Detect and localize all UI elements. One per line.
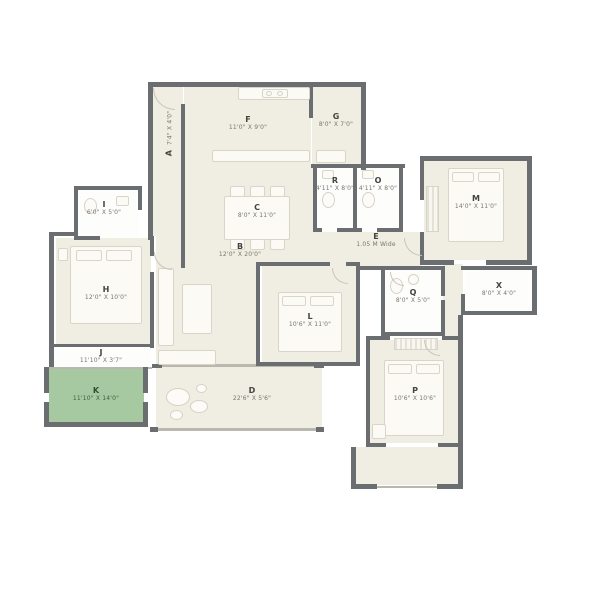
wall (381, 266, 445, 270)
wall (44, 422, 148, 427)
wall (311, 164, 405, 168)
sink-icon (408, 274, 419, 285)
pillow-icon (416, 364, 440, 374)
wall (143, 402, 148, 427)
pillow-icon (106, 250, 132, 261)
balcony-rail (377, 486, 437, 488)
burner-icon (266, 91, 272, 96)
coffee-table-icon (182, 284, 212, 334)
wall (353, 164, 357, 232)
wall (351, 484, 377, 489)
wall (181, 104, 185, 268)
wall (256, 262, 330, 266)
wall (437, 484, 463, 489)
balcony-floor (356, 447, 458, 485)
wall (532, 266, 537, 315)
chair-icon (270, 186, 285, 197)
wall (49, 232, 54, 346)
wall (313, 164, 317, 232)
sink-icon (362, 170, 374, 179)
wall (461, 311, 537, 315)
wall (44, 367, 49, 393)
sofa-icon (158, 268, 174, 346)
wall (74, 236, 100, 240)
sink-icon (116, 196, 129, 206)
wall (486, 260, 532, 265)
wall (458, 447, 463, 488)
wall (256, 262, 260, 366)
wall (441, 300, 445, 336)
wall (361, 82, 366, 170)
wall (381, 266, 385, 336)
stone-icon (190, 400, 208, 413)
wall (458, 315, 463, 447)
wall (49, 232, 76, 236)
chair-icon (230, 239, 245, 250)
door-opening (322, 228, 337, 232)
room-k-floor (49, 369, 144, 423)
wall (441, 266, 445, 296)
utility-sink-icon (316, 150, 346, 163)
sofa-icon (158, 350, 216, 365)
door-opening (362, 228, 377, 232)
side-table-icon (372, 424, 386, 439)
wall (461, 294, 465, 315)
pillow-icon (310, 296, 334, 306)
burner-icon (277, 91, 283, 96)
kitchen-island-icon (212, 150, 310, 162)
chair-icon (230, 186, 245, 197)
wall (381, 332, 445, 336)
wall (399, 164, 403, 232)
wall (420, 260, 454, 265)
pillow-icon (282, 296, 306, 306)
room-x-floor (465, 270, 532, 311)
wall (420, 156, 532, 161)
toilet-icon (362, 192, 375, 208)
stone-icon (166, 388, 190, 406)
toilet-icon (84, 198, 97, 214)
toilet-icon (322, 192, 335, 208)
wall (358, 266, 383, 270)
pillow-icon (478, 172, 500, 182)
wall (143, 367, 148, 393)
deck-rail (154, 428, 324, 431)
wall (420, 156, 424, 200)
dining-table-icon (224, 196, 290, 240)
wall (49, 344, 152, 347)
stone-icon (170, 410, 183, 420)
side-table-icon (58, 248, 68, 261)
wall (461, 266, 537, 270)
wall (74, 186, 142, 190)
chair-icon (270, 239, 285, 250)
floorplan: A 7'4" X 4'0" F 11'0" X 9'0" G 8'0" X 7'… (0, 0, 600, 600)
wall (527, 156, 532, 265)
wall (366, 336, 370, 447)
wall (256, 362, 360, 366)
chair-icon (250, 186, 265, 197)
wall (49, 344, 54, 367)
stone-icon (196, 384, 207, 393)
wall (138, 186, 142, 210)
wall (150, 427, 158, 432)
wall (351, 447, 356, 488)
wall (150, 272, 154, 348)
rail (49, 367, 152, 369)
room-i-floor (79, 190, 139, 238)
chair-icon (250, 239, 265, 250)
pillow-icon (452, 172, 474, 182)
wardrobe-icon (426, 186, 439, 232)
wall (148, 82, 153, 240)
wall (366, 443, 386, 447)
wall (356, 262, 360, 366)
room-j-floor (54, 347, 151, 368)
pillow-icon (76, 250, 102, 261)
sink-icon (322, 170, 334, 179)
wall (316, 427, 324, 432)
wall (366, 336, 390, 340)
pillow-icon (388, 364, 412, 374)
